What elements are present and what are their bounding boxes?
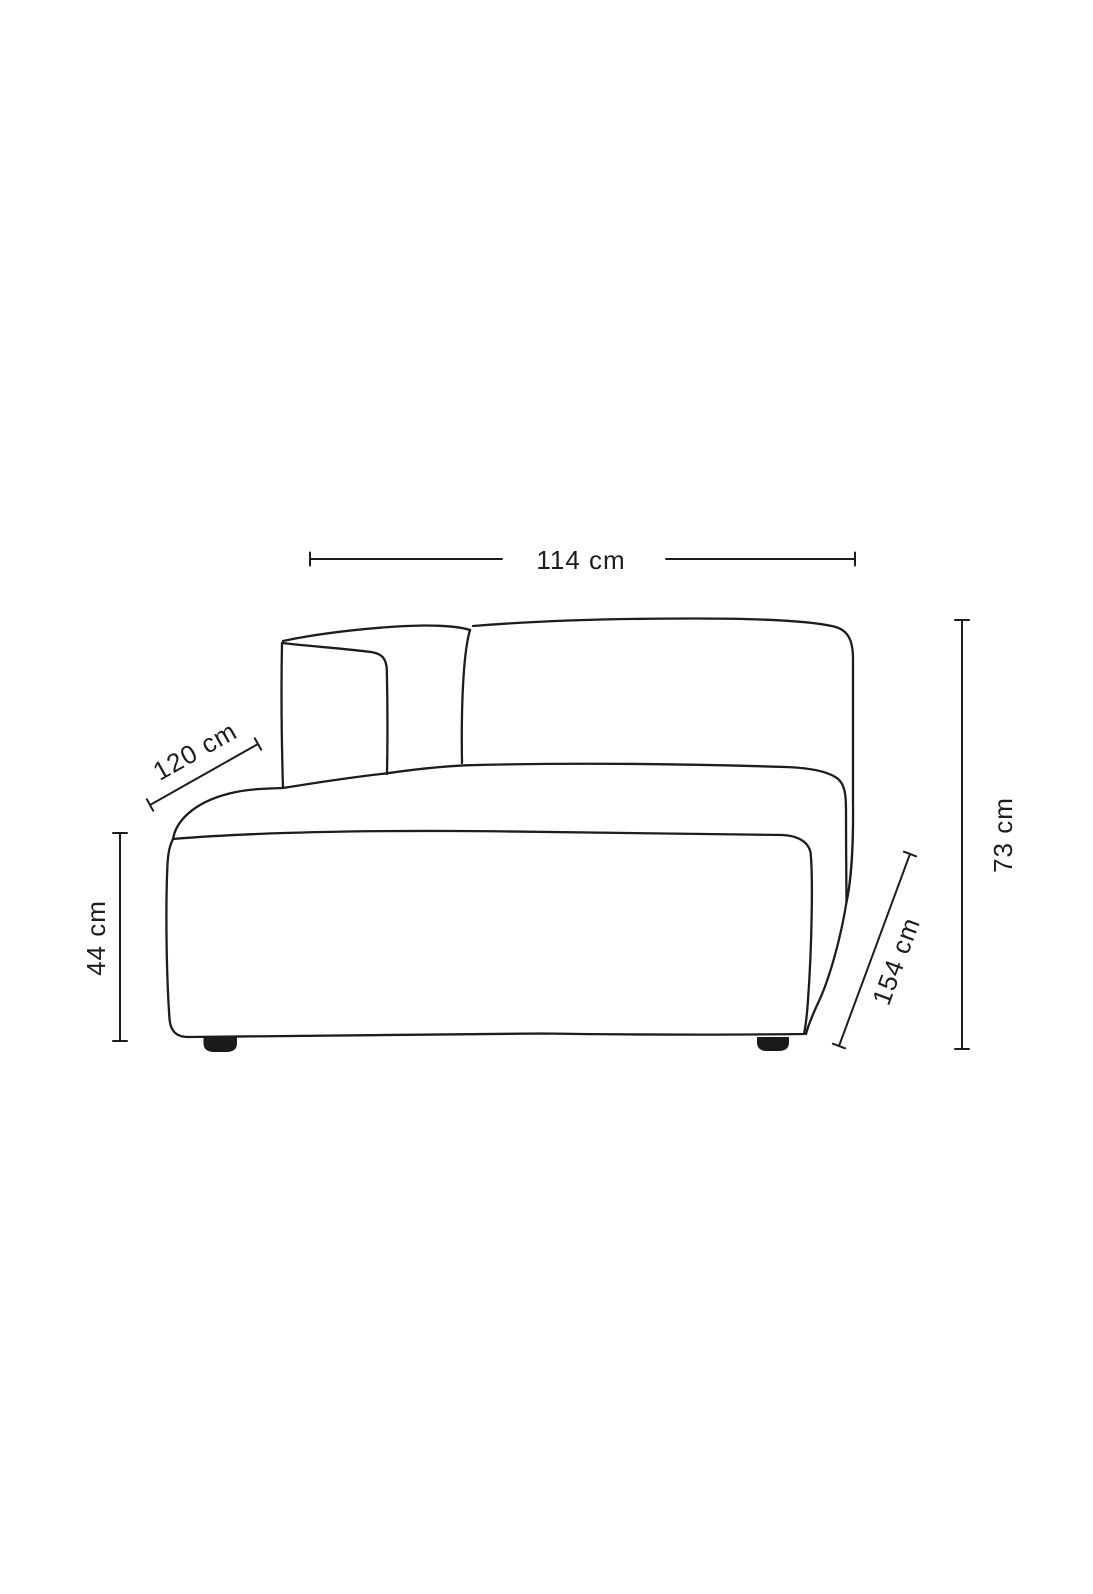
backrest-small-outline: [282, 643, 387, 774]
label-total-height: 73 cm: [988, 797, 1018, 873]
backrest-large-outline: [473, 619, 853, 903]
dimension-diagram-page: 114 cm 120 cm 44 cm 154 cm 73 cm: [0, 0, 1093, 1594]
backrest-small-left-edge: [282, 643, 283, 788]
label-total-depth: 154 cm: [866, 913, 926, 1009]
backrest-large-left-edge: [462, 630, 470, 763]
label-back-depth: 120 cm: [148, 716, 242, 787]
backrest-large-top-seam: [283, 626, 470, 642]
dim-line-total-height: [955, 620, 969, 1049]
sofa-line-drawing: [166, 619, 853, 1053]
label-top-width: 114 cm: [536, 545, 625, 575]
sofa-foot-left: [204, 1037, 238, 1052]
sofa-foot-right: [757, 1037, 789, 1051]
base-outline: [166, 831, 811, 1037]
dimension-lines: [113, 553, 969, 1050]
dim-line-seat-height: [113, 833, 127, 1041]
sofa-dimension-diagram: 114 cm 120 cm 44 cm 154 cm 73 cm: [0, 0, 1093, 1594]
label-seat-height: 44 cm: [81, 900, 111, 976]
